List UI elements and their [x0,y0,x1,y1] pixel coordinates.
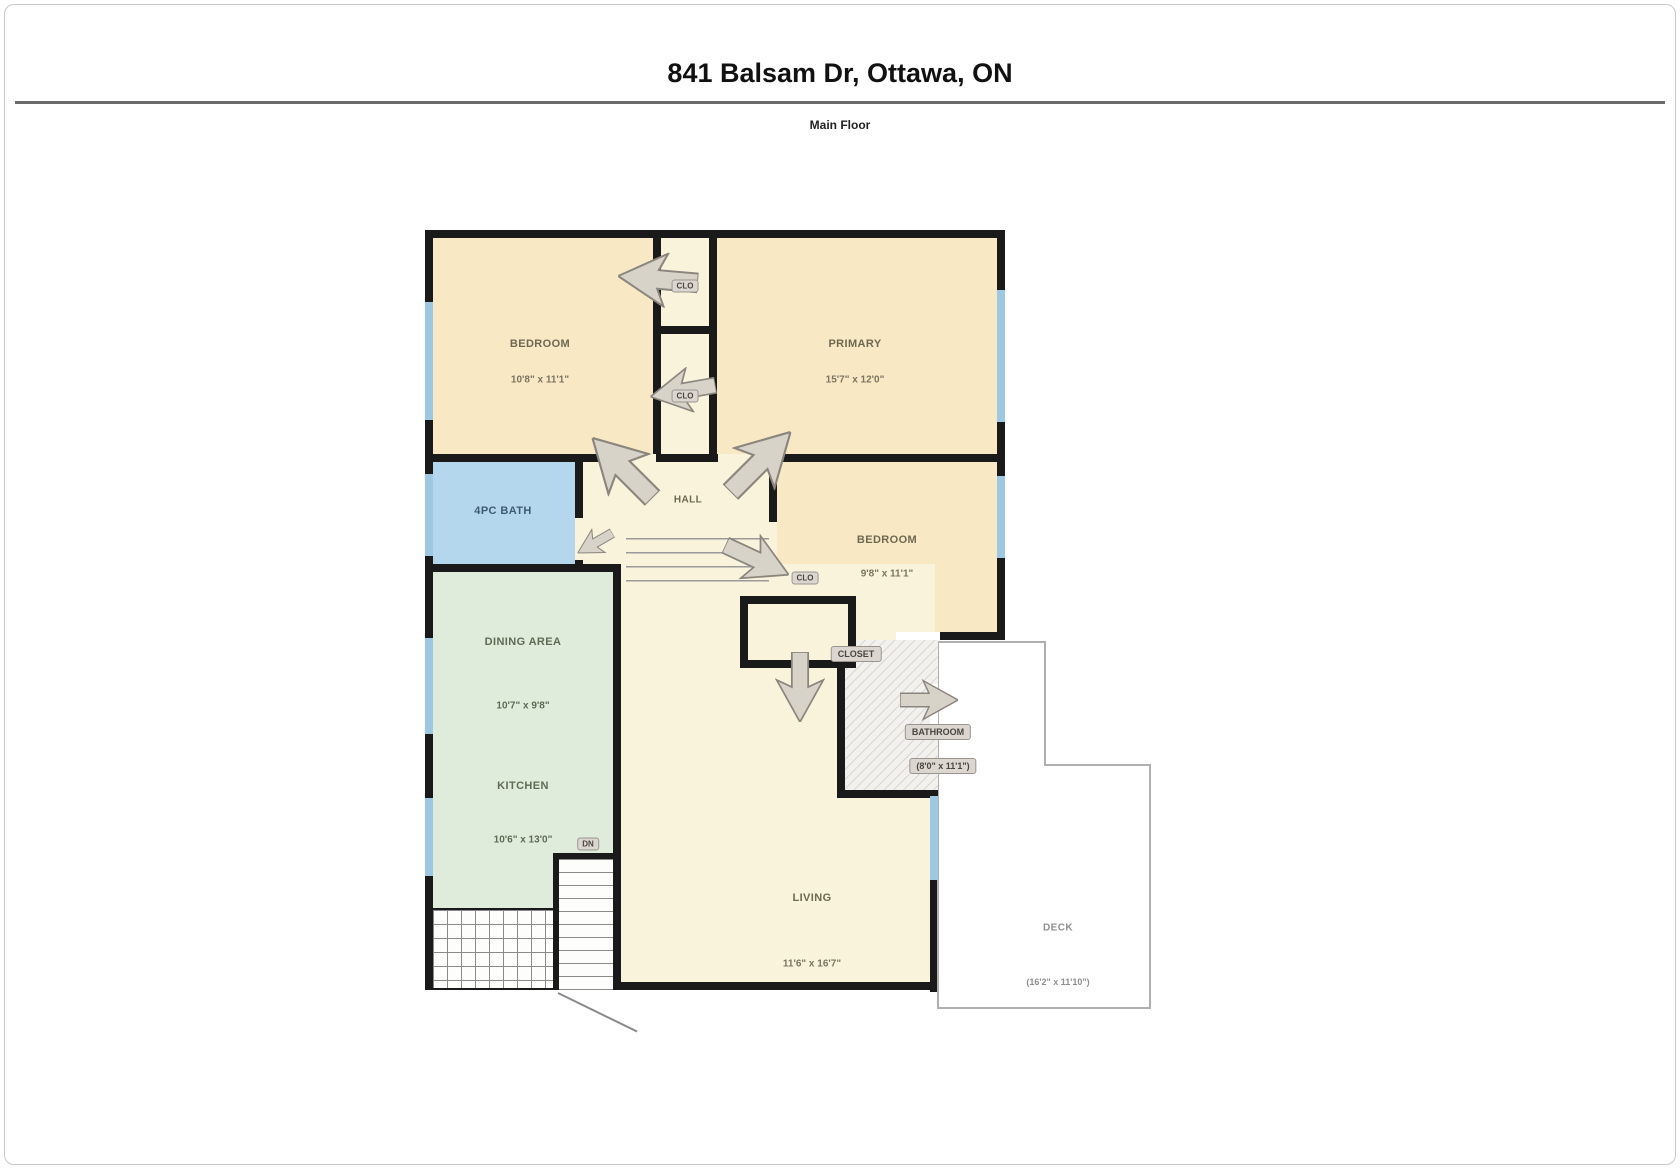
window [425,302,433,420]
window [930,796,938,880]
deck-dim: (16'2" x 11'10") [1026,977,1089,987]
bedroom2-dim: 9'8" x 11'1" [861,569,914,580]
door-arrow [900,678,958,722]
living-label: LIVING [792,892,831,904]
page-title: 841 Balsam Dr, Ottawa, ON [0,58,1680,89]
kitchen-dim: 10'6" x 13'0" [494,835,553,846]
closet-chip-mid: CLO [672,390,699,403]
window [425,474,433,556]
window [997,290,1005,422]
dining-dim: 10'7" x 9'8" [496,701,549,712]
window [425,798,433,876]
bedroom1-dim: 10'8" x 11'1" [511,375,569,386]
living-dim: 11'6" x 16'7" [783,959,841,970]
stairs-side-run [553,853,619,990]
bedroom1-label: BEDROOM [510,338,570,350]
window [997,476,1005,558]
bedroom2-label: BEDROOM [857,534,917,546]
kitchen-label: KITCHEN [497,780,549,792]
floor-subtitle: Main Floor [0,118,1680,132]
hall-label: HALL [674,495,702,506]
deck-label: DECK [1043,923,1073,934]
header-divider [15,101,1665,104]
closet-chip-top: CLO [672,280,699,293]
doorway [896,632,940,640]
closet-chip-hall: CLO [792,572,819,585]
deck-outline [928,632,1160,1018]
floorplan-page: 841 Balsam Dr, Ottawa, ON Main Floor DEC… [0,0,1680,1169]
closet-chip-main: CLOSET [831,646,882,662]
bath-label: 4PC BATH [474,505,531,517]
dining-label: DINING AREA [485,636,562,648]
window [425,638,433,734]
stairs-dn-chip: DN [577,838,599,851]
bathroom-label-chip: BATHROOM [905,724,971,740]
bathroom-dim-chip: (8'0" x 11'1") [909,758,976,774]
primary-label: PRIMARY [828,338,881,350]
primary-dim: 15'7" x 12'0" [826,375,885,386]
door-arrow [775,652,825,722]
